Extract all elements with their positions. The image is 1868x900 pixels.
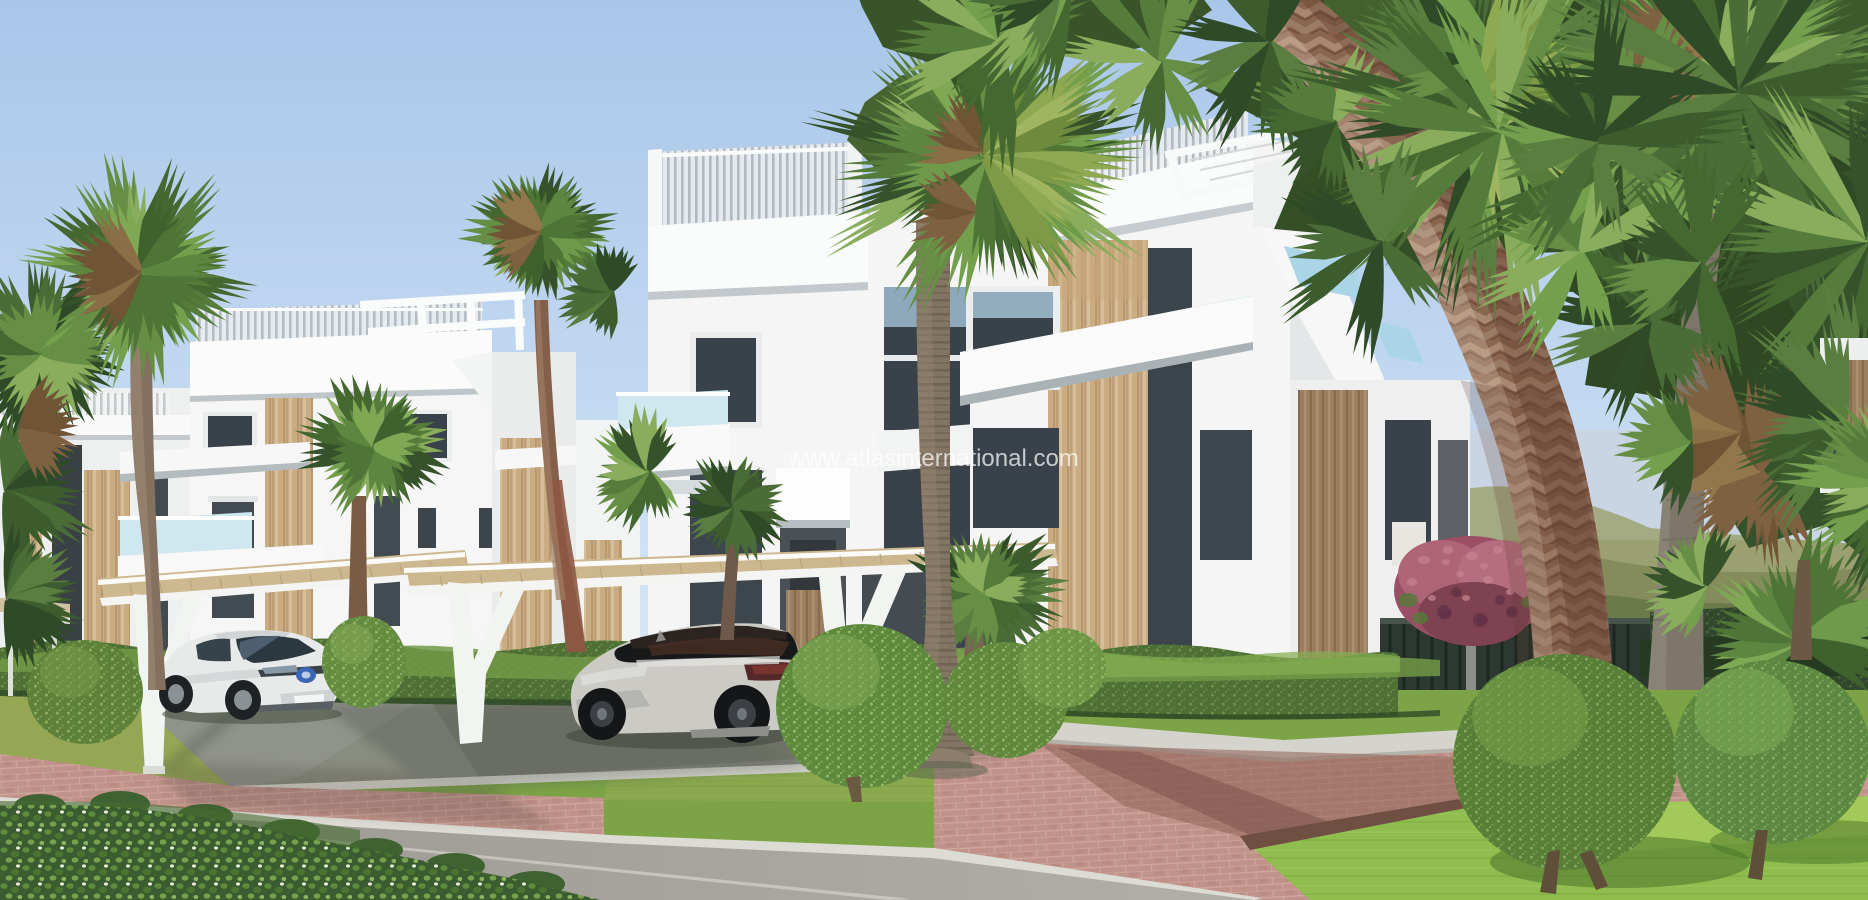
svg-text:www.atlasinternational.com: www.atlasinternational.com [787,445,1079,472]
